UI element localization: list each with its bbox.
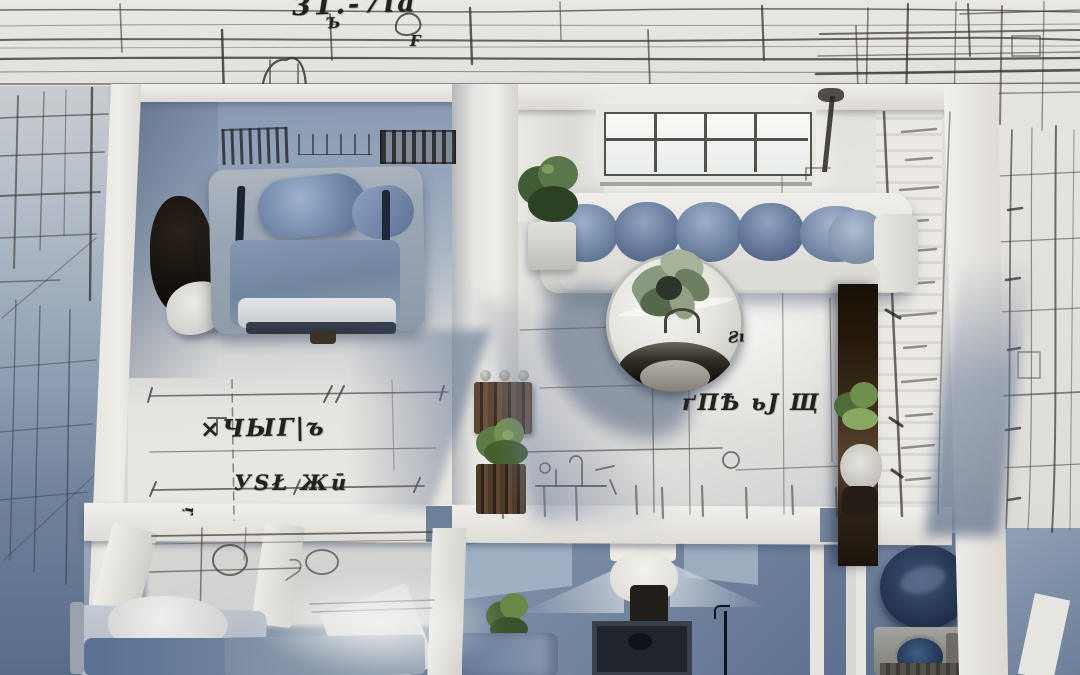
left-room-scribble-1: ×ЧЫГ|ъ: [200, 415, 326, 441]
shelf-plant: [832, 382, 882, 434]
right-room-scribble: ґПѢ ьЈ Щ: [682, 392, 820, 414]
floor-mist: [252, 572, 502, 675]
sofa-armrest: [874, 214, 918, 292]
sofa-cushion-4: [738, 203, 804, 261]
left-room-tick-scribble: ŗ: [183, 507, 197, 514]
sofa-planter-box: [528, 222, 576, 270]
dimension-mark-left: Ъ: [325, 16, 340, 32]
left-room-scribble-2: УЅŁ Жū: [234, 472, 349, 493]
table-plant-pot-handle: [664, 308, 700, 333]
floorplan-render: 31.-7ia Ъ Ϝ ×ЧЫГ|ъ УЅŁ Жū ŗ ґПѢ ьЈ Щ Ƨı: [0, 0, 1080, 675]
bedroom-wall-scribble-2: [298, 134, 372, 155]
bed-foot-knob: [310, 330, 336, 344]
table-plant: [620, 242, 720, 336]
bedroom-wall-scribble-1: [221, 127, 288, 165]
dimension-mark-right: Ϝ: [410, 34, 421, 49]
title-scribble: 31.-7ia: [292, 0, 419, 20]
bedroom-wall-grill: [380, 130, 456, 164]
bottom-bed-headboard: [70, 602, 84, 674]
shelf-dark-pot: [842, 486, 878, 516]
table-foot-arc: [640, 360, 710, 392]
sofa-plant-foliage: [518, 156, 584, 230]
planter-pot: [476, 464, 526, 514]
right-room-small-mark: Ƨı: [727, 329, 745, 346]
bed-group: [206, 166, 430, 338]
